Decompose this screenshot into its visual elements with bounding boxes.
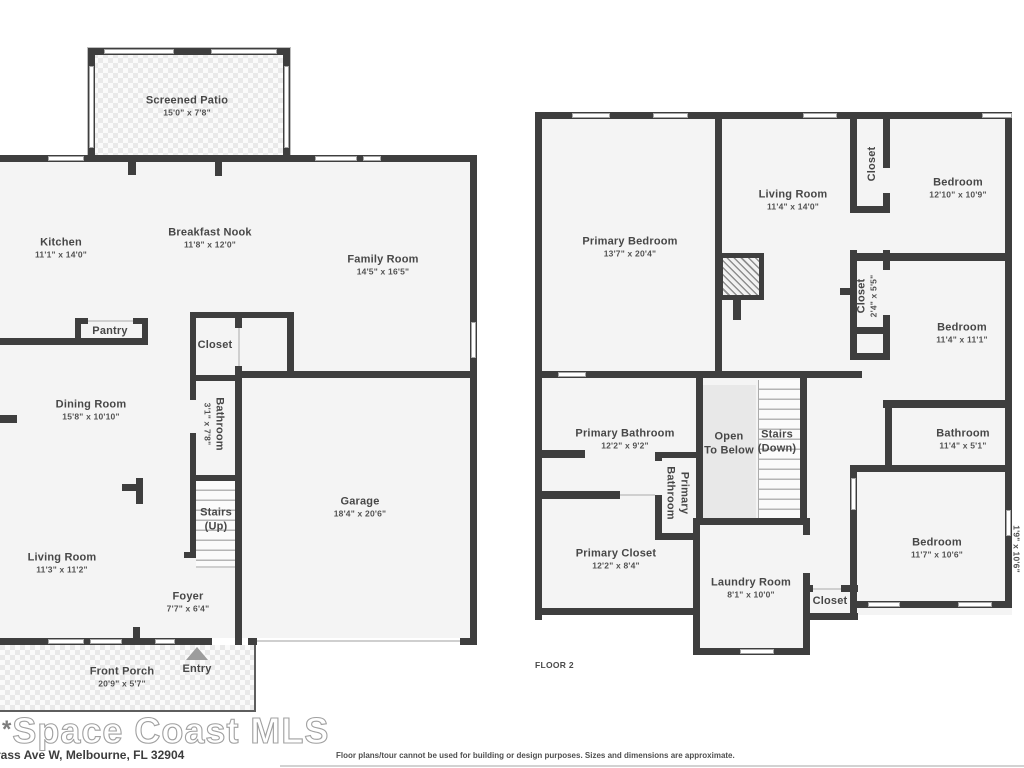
room-name: Breakfast Nook <box>168 225 252 239</box>
wall <box>800 378 807 525</box>
wall <box>287 312 294 378</box>
door-opening <box>803 535 810 573</box>
room-label-garage: Garage 18'4" x 20'6" <box>334 494 387 519</box>
room-dims: 20'9" x 5'7" <box>90 679 155 690</box>
window <box>653 113 688 118</box>
room-name: Pantry <box>92 324 127 338</box>
room-label-bathroom: Bathroom 3'1" x 7'8" <box>201 397 226 451</box>
room-label-front-porch: Front Porch 20'9" x 5'7" <box>90 664 155 689</box>
room-label-open-to-below: Open To Below <box>704 430 754 459</box>
room-dims: 18'4" x 20'6" <box>334 509 387 520</box>
wall <box>190 312 196 380</box>
window <box>284 66 289 148</box>
room-dims: 12'10" x 10'9" <box>929 190 986 201</box>
wall <box>190 481 196 558</box>
door-opening <box>883 168 890 193</box>
wall <box>883 112 890 213</box>
room-label-breakfast-nook: Breakfast Nook 11'8" x 12'0" <box>168 225 252 250</box>
room-label-primary-bedroom: Primary Bedroom 13'7" x 20'4" <box>582 234 677 259</box>
room-label-closet: Closet <box>198 338 233 352</box>
room-label-living-room: Living Room 11'3" x 11'2" <box>28 550 97 575</box>
window <box>211 49 277 54</box>
wall <box>0 338 148 345</box>
wall <box>470 155 477 645</box>
wall <box>128 162 136 175</box>
room-name: Living Room <box>28 550 97 564</box>
window <box>155 639 175 644</box>
room-name: Bedroom <box>936 320 988 334</box>
room-dims: 14'5" x 16'5" <box>347 267 418 278</box>
room-name: Primary <box>677 466 691 520</box>
room-dims: 11'7" x 10'6" <box>911 550 963 561</box>
wall <box>190 375 241 381</box>
label-side-nook-dims: 1'9" x 10'6" <box>1010 525 1021 573</box>
logo-text: Space Coast MLS <box>12 710 329 751</box>
door-line <box>620 494 655 496</box>
wall <box>850 112 857 213</box>
room-name: Bathroom <box>663 466 677 520</box>
room-label-closet-top: Closet <box>865 147 879 182</box>
window <box>471 322 476 358</box>
window <box>48 156 84 161</box>
room-name: Bathroom <box>936 426 990 440</box>
wall <box>535 491 620 499</box>
window <box>48 639 84 644</box>
room-name: Dining Room <box>56 397 127 411</box>
room-dims: 13'7" x 20'4" <box>582 249 677 260</box>
room-name: Living Room <box>759 187 828 201</box>
wall <box>235 371 477 378</box>
room-label-pantry: Pantry <box>92 324 127 338</box>
logo-asterisk: * <box>2 716 12 743</box>
room-name: Front Porch <box>90 664 155 678</box>
room-label-living-room2: Living Room 11'4" x 14'0" <box>759 187 828 212</box>
room-label-foyer: Foyer 7'7" x 6'4" <box>167 589 210 614</box>
room-label-bathroom2: Bathroom 11'4" x 5'1" <box>936 426 990 451</box>
room-name: Open <box>704 430 754 444</box>
room-label-screened-patio: Screened Patio 15'0" x 7'8" <box>146 93 228 118</box>
wall <box>850 253 1012 261</box>
door-line <box>813 588 841 590</box>
floor2-tag: FLOOR 2 <box>535 660 574 670</box>
disclaimer-text: Floor plans/tour cannot be used for buil… <box>336 751 735 760</box>
window <box>958 602 992 607</box>
room-name: Primary Bedroom <box>582 234 677 248</box>
room-label-bedroom-bottom: Bedroom 11'7" x 10'6" <box>911 535 963 560</box>
wall <box>733 300 741 320</box>
stairs-edge-line <box>196 566 235 568</box>
room-name: To Below <box>704 444 754 458</box>
wall <box>122 484 141 491</box>
room-label-primary-bathroom-small: Primary Bathroom <box>663 466 692 520</box>
wall <box>850 327 890 334</box>
room-dims: (Up) <box>200 520 232 534</box>
room-dims: 15'0" x 7'8" <box>146 108 228 119</box>
room-dims: 12'2" x 8'4" <box>576 561 656 572</box>
room-label-laundry-room: Laundry Room 8'1" x 10'0" <box>711 575 791 600</box>
wall <box>885 400 892 472</box>
door-opening <box>883 270 890 315</box>
room-dims: 11'1" x 14'0" <box>35 250 87 261</box>
entry-arrow-icon <box>186 647 208 660</box>
room-dims: 11'3" x 11'2" <box>28 565 97 576</box>
room-name: Closet <box>813 594 848 608</box>
room-name: Closet <box>198 338 233 352</box>
room-name: Kitchen <box>35 235 87 249</box>
window <box>982 113 1012 118</box>
room-name: Primary Bathroom <box>575 426 674 440</box>
window <box>363 156 381 161</box>
door-opening <box>655 461 662 495</box>
footer-rule <box>280 765 1024 767</box>
wall <box>715 112 722 378</box>
window <box>90 639 122 644</box>
room-dims: 3'1" x 7'8" <box>201 397 212 451</box>
room-dims: 2'4" x 5'5" <box>869 275 880 318</box>
wall <box>693 518 700 655</box>
room-dims: 8'1" x 10'0" <box>711 590 791 601</box>
entry-opening <box>212 638 248 645</box>
wall <box>850 465 1012 472</box>
wall <box>190 312 294 318</box>
garage-door-line <box>257 640 460 642</box>
room-dims: (Down) <box>758 442 796 456</box>
wall <box>184 552 196 558</box>
wall <box>215 162 222 176</box>
wall <box>133 627 140 638</box>
room-dims: 11'8" x 12'0" <box>168 240 252 251</box>
wall <box>883 400 1012 408</box>
room-name: Screened Patio <box>146 93 228 107</box>
room-name: Bedroom <box>929 175 986 189</box>
window <box>89 66 94 148</box>
room-label-stairs-up: Stairs (Up) <box>200 506 232 535</box>
wall <box>0 415 17 423</box>
room-label-primary-closet: Primary Closet 12'2" x 8'4" <box>576 546 656 571</box>
window <box>558 372 586 377</box>
wall <box>850 206 890 213</box>
wall <box>136 478 143 504</box>
wall <box>696 518 807 525</box>
room-name: Closet <box>854 275 868 318</box>
floorplan-page: Screened Patio 15'0" x 7'8" Kitchen 11'1… <box>0 0 1024 768</box>
door-line <box>88 320 133 322</box>
mls-logo: *Space Coast MLS <box>2 710 329 752</box>
room-name: Foyer <box>167 589 210 603</box>
window <box>572 113 610 118</box>
room-name: Primary Closet <box>576 546 656 560</box>
room-label-entry: Entry <box>182 662 211 676</box>
room-label-family-room: Family Room 14'5" x 16'5" <box>347 252 418 277</box>
room-name: Closet <box>865 147 879 182</box>
window <box>740 649 774 654</box>
wall <box>850 353 890 360</box>
room-name: Bedroom <box>911 535 963 549</box>
door-line <box>238 328 240 366</box>
wall <box>535 608 700 615</box>
room-name: Entry <box>182 662 211 676</box>
room-label-closet-laundry: Closet <box>813 594 848 608</box>
window <box>104 49 174 54</box>
room-label-kitchen: Kitchen 11'1" x 14'0" <box>35 235 87 260</box>
room-label-closet-mid: Closet 2'4" x 5'5" <box>854 275 879 318</box>
room-label-stairs-down: Stairs (Down) <box>758 428 796 457</box>
room-label-primary-bathroom: Primary Bathroom 12'2" x 9'2" <box>575 426 674 451</box>
room-dims: 15'8" x 10'10" <box>56 412 127 423</box>
room-name: Bathroom <box>212 397 226 451</box>
room-name: Garage <box>334 494 387 508</box>
window <box>315 156 357 161</box>
window <box>851 478 856 510</box>
window <box>868 602 900 607</box>
chimney-hatch <box>718 253 764 300</box>
window <box>803 113 837 118</box>
room-name: Laundry Room <box>711 575 791 589</box>
room-name: Family Room <box>347 252 418 266</box>
room-dims: 7'7" x 6'4" <box>167 604 210 615</box>
room-label-dining-room: Dining Room 15'8" x 10'10" <box>56 397 127 422</box>
room-dims: 1'9" x 10'6" <box>1010 525 1021 573</box>
room-name: Stairs <box>758 428 796 442</box>
door-opening <box>190 400 196 433</box>
room-name: Stairs <box>200 506 232 520</box>
room-dims: 11'4" x 11'1" <box>936 335 988 346</box>
room-dims: 12'2" x 9'2" <box>575 441 674 452</box>
room-dims: 11'4" x 5'1" <box>936 441 990 452</box>
room-dims: 11'4" x 14'0" <box>759 202 828 213</box>
listing-address: rass Ave W, Melbourne, FL 32904 <box>0 748 184 762</box>
room-label-bedroom-mid: Bedroom 11'4" x 11'1" <box>936 320 988 345</box>
room-label-bedroom-top: Bedroom 12'10" x 10'9" <box>929 175 986 200</box>
wall <box>840 288 850 295</box>
wall <box>535 112 542 620</box>
